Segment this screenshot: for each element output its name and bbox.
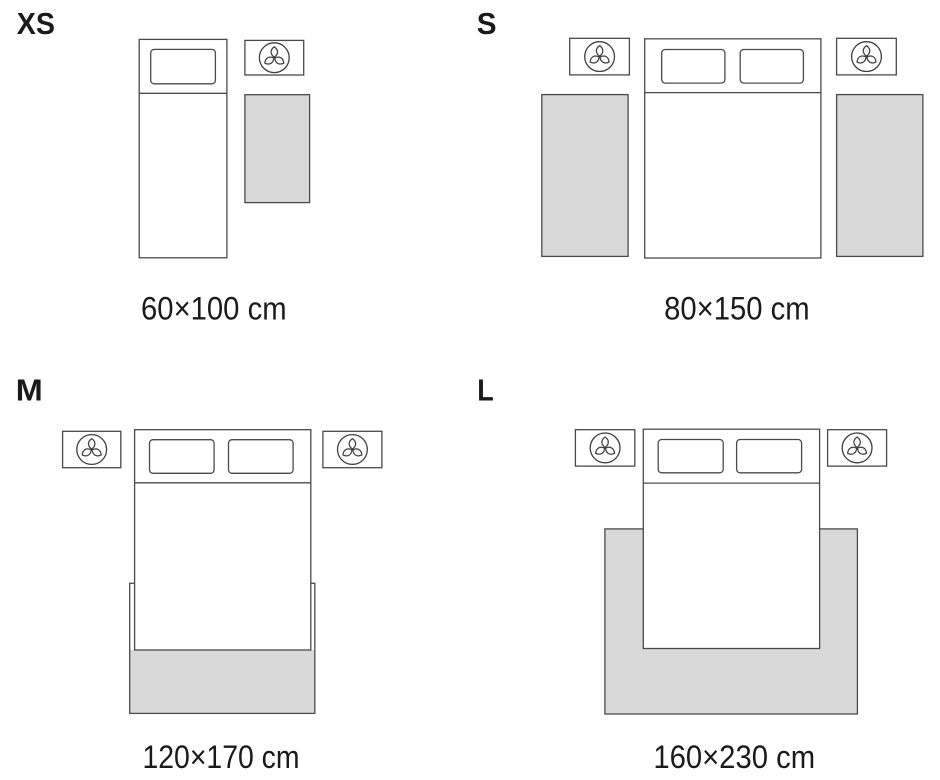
svg-text:160×230 cm: 160×230 cm — [653, 739, 815, 776]
svg-text:60×100 cm: 60×100 cm — [141, 290, 287, 327]
svg-text:L: L — [477, 374, 493, 408]
svg-text:S: S — [477, 8, 497, 41]
svg-text:M: M — [16, 373, 43, 407]
svg-text:XS: XS — [17, 7, 55, 41]
svg-text:80×150 cm: 80×150 cm — [664, 290, 810, 327]
svg-text:120×170 cm: 120×170 cm — [142, 739, 299, 775]
